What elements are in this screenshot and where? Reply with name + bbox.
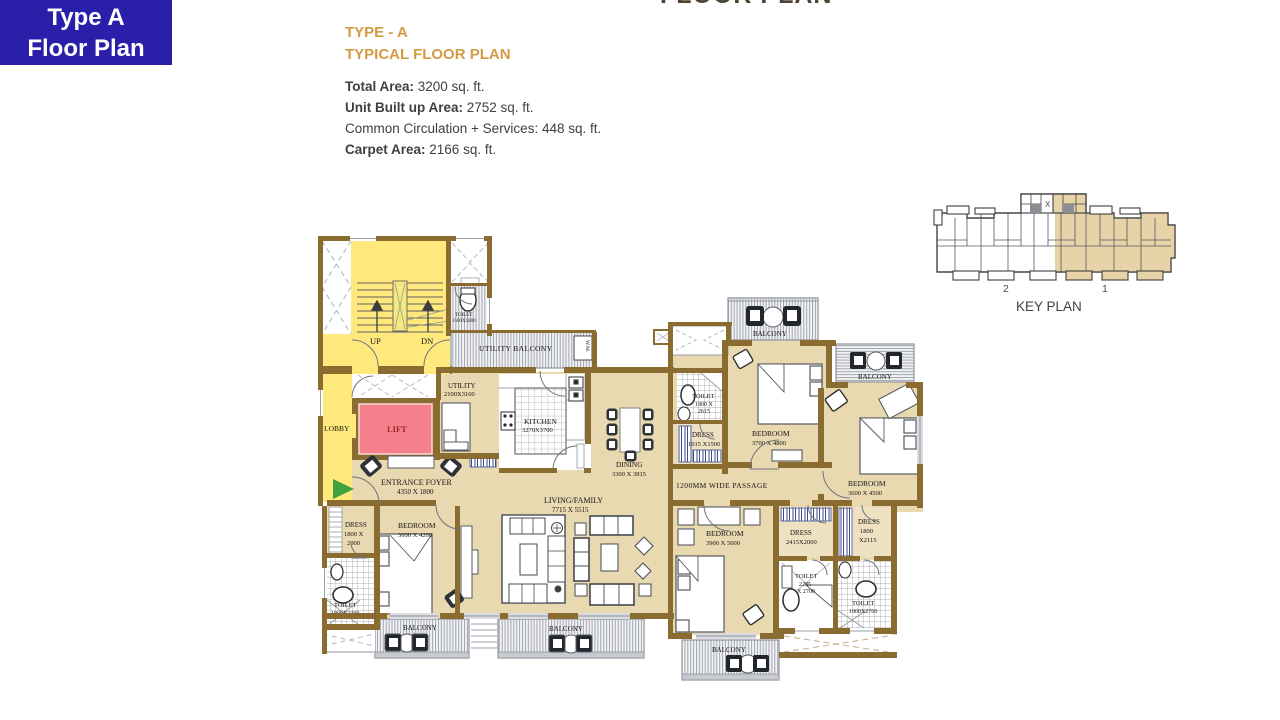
svg-text:BALCONY: BALCONY (858, 373, 892, 381)
svg-text:BALCONY: BALCONY (403, 624, 437, 632)
svg-text:2615: 2615 (698, 409, 710, 415)
svg-text:DN: DN (421, 336, 433, 346)
svg-text:DRESS: DRESS (858, 518, 880, 526)
svg-text:DRESS: DRESS (345, 521, 367, 529)
svg-text:3300 X 3815: 3300 X 3815 (612, 471, 646, 478)
svg-text:DRESS: DRESS (790, 529, 812, 537)
svg-text:2415X2000: 2415X2000 (786, 539, 817, 546)
svg-text:ENTRANCE FOYER: ENTRANCE FOYER (381, 478, 453, 487)
svg-text:4350 X 1800: 4350 X 1800 (397, 488, 434, 496)
svg-text:TOILET: TOILET (334, 602, 357, 609)
svg-text:1915 X1500: 1915 X1500 (688, 441, 720, 448)
svg-text:BALCONY: BALCONY (753, 330, 787, 338)
svg-text:1: 1 (1102, 283, 1108, 295)
svg-text:3900 X 5000: 3900 X 5000 (706, 540, 740, 547)
svg-text:UTILITY BALCONY: UTILITY BALCONY (479, 344, 553, 353)
svg-text:KITCHEN: KITCHEN (524, 417, 557, 426)
svg-text:7715 X 5515: 7715 X 5515 (552, 506, 589, 514)
svg-text:LOBBY: LOBBY (324, 424, 350, 433)
svg-text:2000: 2000 (347, 540, 360, 547)
svg-text:LIVING/FAMILY: LIVING/FAMILY (544, 496, 603, 505)
svg-text:UTILITY: UTILITY (448, 382, 476, 390)
svg-text:3700 X 4800: 3700 X 4800 (752, 440, 786, 447)
svg-text:DINING: DINING (616, 460, 643, 469)
svg-text:3600 X 4500: 3600 X 4500 (848, 490, 882, 497)
svg-text:1800 X: 1800 X (695, 402, 714, 408)
svg-text:KEY PLAN: KEY PLAN (1016, 299, 1082, 314)
svg-text:1800X2700: 1800X2700 (849, 609, 877, 615)
svg-text:1500X1800: 1500X1800 (452, 319, 476, 324)
svg-text:3600 X 4200: 3600 X 4200 (398, 532, 432, 539)
svg-text:X2115: X2115 (859, 537, 876, 544)
svg-text:BEDROOM: BEDROOM (752, 429, 790, 438)
svg-text:1800: 1800 (860, 528, 873, 535)
svg-text:2100X3100: 2100X3100 (444, 391, 475, 398)
svg-text:LIFT: LIFT (387, 424, 407, 434)
svg-text:X: X (1045, 200, 1051, 209)
svg-text:2: 2 (1003, 283, 1009, 295)
svg-text:BEDROOM: BEDROOM (398, 521, 436, 530)
svg-text:X 2700: X 2700 (797, 589, 815, 595)
svg-text:TOILET: TOILET (455, 313, 472, 318)
svg-text:3270X3700: 3270X3700 (522, 427, 553, 434)
svg-text:BALCONY: BALCONY (712, 646, 746, 654)
svg-text:TOILET: TOILET (692, 393, 715, 400)
svg-text:BEDROOM: BEDROOM (848, 479, 886, 488)
svg-text:UP: UP (370, 336, 381, 346)
svg-text:1800 X: 1800 X (344, 531, 364, 538)
svg-text:2285: 2285 (799, 582, 811, 588)
svg-text:TOILET: TOILET (795, 573, 818, 580)
svg-text:TOILET: TOILET (852, 600, 875, 607)
svg-text:1200MM WIDE PASSAGE: 1200MM WIDE PASSAGE (676, 481, 768, 490)
svg-text:BALCONY: BALCONY (549, 625, 583, 633)
svg-text:W.M.: W.M. (584, 340, 590, 353)
